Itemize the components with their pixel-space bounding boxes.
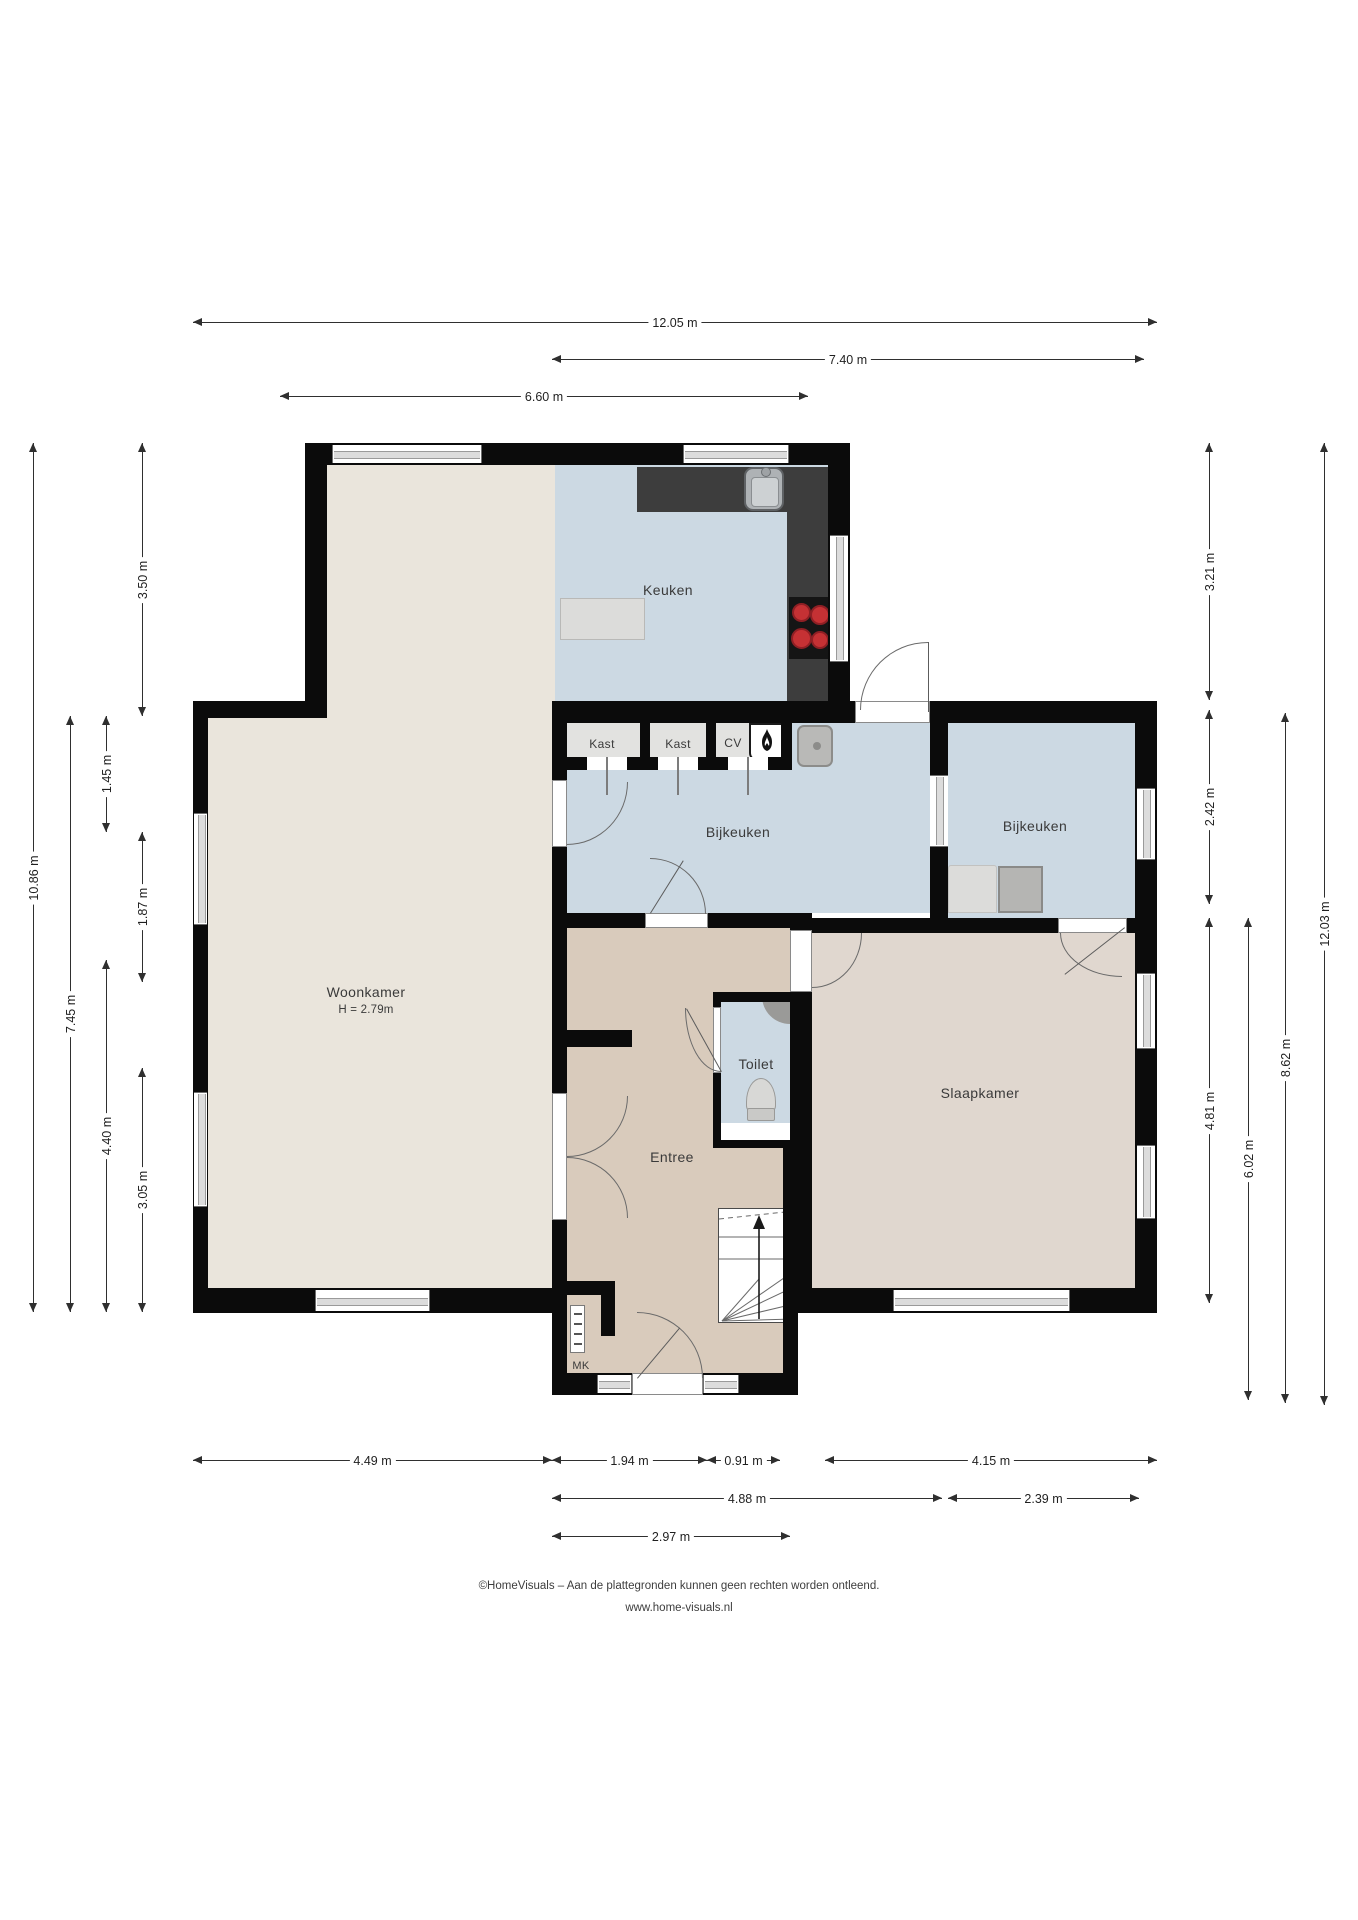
wall (601, 1281, 615, 1336)
room-label-mk-text: MK (572, 1360, 589, 1372)
dimension-label: 1.87 m (136, 884, 150, 930)
burner-icon (792, 603, 811, 622)
window (683, 445, 789, 463)
wall (640, 723, 650, 770)
dimension-label: 0.91 m (720, 1454, 766, 1468)
room-label-kast-1: Kast (589, 737, 615, 751)
kitchen-base-cabinet (560, 598, 645, 640)
dryer (998, 866, 1043, 913)
window (703, 1375, 739, 1393)
door-opening (1058, 918, 1127, 933)
door-opening (645, 913, 708, 928)
room-label-slaapkamer-text: Slaapkamer (941, 1085, 1020, 1101)
dimension-left-3-50: 3.50 m (142, 443, 143, 716)
dimension-top-left-section: 6.60 m (280, 396, 808, 397)
door-opening (790, 930, 812, 992)
dimension-bottom-4-15: 4.15 m (825, 1460, 1157, 1461)
dimension-right-overall: 12.03 m (1324, 443, 1325, 1405)
closet-door-tick-line (677, 757, 679, 795)
dimension-left-4-40: 4.40 m (106, 960, 107, 1312)
floor-slaapkamer (812, 933, 1135, 1288)
dimension-bottom-0-91: 0.91 m (707, 1460, 780, 1461)
dimension-label: 3.05 m (136, 1167, 150, 1213)
kitchen-faucet-icon (761, 467, 771, 477)
dimension-label: 6.02 m (1242, 1136, 1256, 1182)
dimension-label: 1.94 m (606, 1454, 652, 1468)
burner-icon (811, 631, 829, 649)
room-label-bijkeuken-right: Bijkeuken (1003, 818, 1067, 834)
floor-plan-page: Woonkamer H = 2.79m Keuken Bijkeuken Bij… (0, 0, 1358, 1920)
dimension-label: 4.15 m (968, 1454, 1014, 1468)
dimension-label: 12.03 m (1318, 897, 1332, 950)
room-label-bijkeuken-left-text: Bijkeuken (706, 824, 770, 840)
kitchen-sink-basin (751, 477, 779, 507)
dimension-label: 8.62 m (1279, 1035, 1293, 1081)
meter-panel-switch (574, 1313, 582, 1315)
room-label-slaapkamer: Slaapkamer (941, 1085, 1020, 1101)
dimension-left-1-45: 1.45 m (106, 716, 107, 832)
wall (305, 443, 327, 718)
dimension-label: 3.50 m (136, 556, 150, 602)
dimension-top-right-section: 7.40 m (552, 359, 1144, 360)
door-leaf (928, 642, 929, 712)
footer: ©HomeVisuals – Aan de plattegronden kunn… (0, 1576, 1358, 1620)
room-label-bijkeuken-right-text: Bijkeuken (1003, 818, 1067, 834)
room-label-entree-text: Entree (650, 1149, 694, 1165)
dimension-right-6-02: 6.02 m (1248, 918, 1249, 1400)
dimension-label: 10.86 m (27, 851, 41, 904)
dimension-bottom-4-49: 4.49 m (193, 1460, 552, 1461)
dimension-right-3-21: 3.21 m (1209, 443, 1210, 700)
meter-panel (570, 1305, 585, 1353)
dimension-top-overall: 12.05 m (193, 322, 1157, 323)
door-opening (552, 780, 567, 847)
window (1137, 973, 1155, 1049)
window (194, 813, 207, 925)
room-label-keuken: Keuken (643, 582, 693, 598)
toilet-cistern (747, 1108, 775, 1121)
cv-boiler (749, 723, 785, 761)
window (194, 1092, 207, 1207)
floor-woonkamer-top (327, 465, 555, 718)
window (597, 1375, 632, 1393)
room-label-bijkeuken-left: Bijkeuken (706, 824, 770, 840)
dimension-left-3-05: 3.05 m (142, 1068, 143, 1312)
dimension-left-woonkamer: 7.45 m (70, 716, 71, 1312)
stairs (718, 1208, 793, 1323)
room-label-woonkamer-height: H = 2.79m (327, 1004, 406, 1016)
meter-panel-switch (574, 1333, 582, 1335)
dimension-right-4-81: 4.81 m (1209, 918, 1210, 1303)
dimension-right-8-62: 8.62 m (1285, 713, 1286, 1403)
room-label-entree: Entree (650, 1149, 694, 1165)
door-swing-arc (860, 642, 928, 710)
dimension-bottom-2-97: 2.97 m (552, 1536, 790, 1537)
dimension-label: 2.97 m (648, 1530, 694, 1544)
dimension-label: 2.42 m (1203, 784, 1217, 830)
flame-icon (751, 725, 783, 759)
wall (713, 992, 790, 1002)
double-door-opening (552, 1093, 567, 1220)
room-label-toilet-text: Toilet (738, 1056, 773, 1072)
interior-glazed-door (930, 775, 948, 847)
window (1137, 1145, 1155, 1219)
closet-door-tick-line (747, 757, 749, 795)
utility-faucet-icon (813, 742, 821, 750)
room-label-kast-2-text: Kast (665, 737, 691, 751)
meter-panel-switch (574, 1323, 582, 1325)
dimension-label: 4.49 m (349, 1454, 395, 1468)
room-label-woonkamer: Woonkamer H = 2.79m (327, 984, 406, 1016)
stove (789, 597, 829, 659)
dimension-left-1-87: 1.87 m (142, 832, 143, 982)
utility-sink (797, 725, 833, 767)
kitchen-sink (744, 467, 784, 511)
dimension-label: 7.45 m (64, 991, 78, 1037)
dimension-label: 12.05 m (648, 316, 701, 330)
dimension-right-2-42: 2.42 m (1209, 710, 1210, 904)
toilet-threshold (721, 1123, 790, 1140)
kitchen-counter-top (637, 467, 828, 512)
dimension-label: 1.45 m (100, 751, 114, 797)
footer-disclaimer: ©HomeVisuals – Aan de plattegronden kunn… (0, 1576, 1358, 1598)
room-label-kast-2: Kast (665, 737, 691, 751)
dimension-label: 2.39 m (1020, 1492, 1066, 1506)
meter-panel-switch (574, 1343, 582, 1345)
wall (713, 1140, 790, 1148)
dimension-label: 7.40 m (825, 353, 871, 367)
room-label-kast-1-text: Kast (589, 737, 615, 751)
dimension-label: 3.21 m (1203, 548, 1217, 594)
dimension-bottom-4-88: 4.88 m (552, 1498, 942, 1499)
dimension-left-overall: 10.86 m (33, 443, 34, 1312)
window (332, 445, 482, 463)
washer (948, 865, 997, 913)
dimension-label: 6.60 m (521, 390, 567, 404)
room-label-keuken-text: Keuken (643, 582, 693, 598)
window (315, 1290, 430, 1311)
dimension-label: 4.88 m (724, 1492, 770, 1506)
dimension-label: 4.81 m (1203, 1087, 1217, 1133)
dimension-bottom-1-94: 1.94 m (552, 1460, 707, 1461)
room-label-cv: CV (724, 736, 741, 750)
room-label-woonkamer-text: Woonkamer (327, 984, 406, 1000)
room-label-cv-text: CV (724, 736, 741, 750)
room-label-mk: MK (572, 1360, 589, 1372)
burner-icon (791, 628, 812, 649)
window (830, 535, 848, 662)
wall (552, 1030, 632, 1047)
dimension-bottom-2-39: 2.39 m (948, 1498, 1139, 1499)
dimension-label: 4.40 m (100, 1113, 114, 1159)
wall (706, 723, 716, 770)
footer-url: www.home-visuals.nl (0, 1598, 1358, 1620)
room-label-toilet: Toilet (738, 1056, 773, 1072)
window (1137, 788, 1155, 860)
window (893, 1290, 1070, 1311)
wall (781, 723, 792, 770)
burner-icon (810, 605, 830, 625)
wall (193, 701, 327, 718)
wall (193, 701, 208, 1313)
